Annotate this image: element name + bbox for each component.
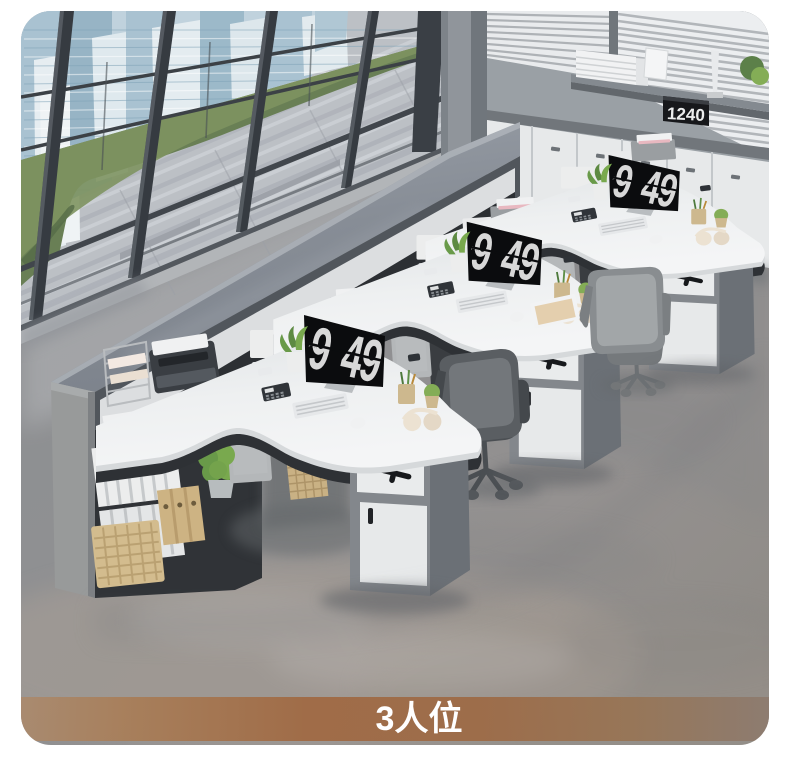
svg-text:1240: 1240 bbox=[667, 104, 706, 125]
svg-text:3人位: 3人位 bbox=[376, 700, 463, 738]
